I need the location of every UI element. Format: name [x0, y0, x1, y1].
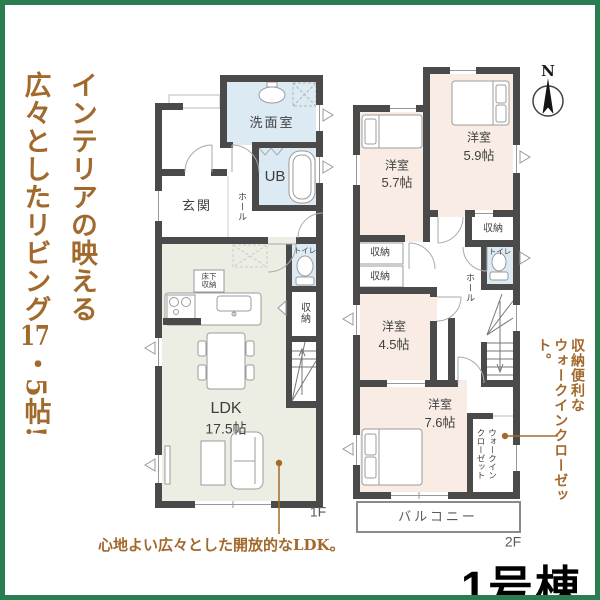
bedroom2-door-arc — [438, 217, 463, 243]
room-label-toilet-2f: トイレ — [489, 248, 512, 256]
room-label-bath: UB — [265, 169, 286, 186]
room-size-bedroom2: 5.9帖 — [463, 149, 494, 163]
room-size-bedroom3: 4.5帖 — [378, 338, 409, 352]
floor2-stairs — [487, 294, 513, 375]
room-label-hall-1f: ホール — [236, 192, 246, 222]
room-label-bedroom1: 洋室 — [385, 159, 409, 172]
bedroom3-door-arc — [437, 297, 461, 321]
wic-caption-line1: 収納便利な — [569, 338, 585, 413]
room-label-wic: ウォークインクローゼット — [475, 429, 498, 480]
room-label-bedroom2: 洋室 — [467, 131, 491, 144]
ldk-caption: 心地よい広々とした開放的なLDK。 — [98, 534, 345, 555]
floor1-label: 1F — [310, 504, 326, 519]
window-shutter-icon — [323, 109, 333, 121]
room-label-closet-2f-c: 収納 — [370, 272, 390, 283]
room-label-balcony: バルコニー — [398, 510, 478, 524]
headline-line2: 広々としたリビング — [19, 71, 50, 323]
floorplan-page: インテリアの映える 広々としたリビング17・5帖! 収納便利な ウォークインクロ… — [0, 0, 600, 600]
washbasin-icon — [259, 87, 285, 103]
room-label-washroom: 洗面室 — [249, 116, 294, 130]
pillow-icon — [365, 434, 376, 455]
headline-vertical-text: インテリアの映える 広々としたリビング17・5帖! — [11, 71, 104, 485]
room-size-bedroom1: 5.7帖 — [381, 176, 412, 190]
room-size-bedroom4: 7.6帖 — [424, 416, 455, 430]
window-shutter-icon — [343, 443, 353, 455]
chair-icon — [246, 341, 254, 356]
floor1-plan — [145, 75, 333, 508]
room-size-ldk: 17.5帖 — [205, 421, 246, 436]
headline-line2-tail: ・5帖! — [19, 350, 50, 439]
room-label-bedroom3: 洋室 — [382, 320, 406, 333]
room-label-hall-2f: ホール — [464, 273, 474, 303]
chair-icon — [198, 341, 206, 356]
room-label-ldk: LDK — [210, 400, 241, 418]
bedroom4-door-arc — [458, 357, 484, 383]
window-shutter-icon — [520, 252, 530, 264]
bedroom1-door-arc — [409, 243, 435, 269]
floor2-plan — [343, 67, 563, 532]
toilet1-bowl — [297, 256, 313, 276]
window-shutter-icon — [323, 161, 333, 173]
pillow-icon — [365, 119, 376, 144]
room-label-closet-2f-b: 収納 — [370, 248, 390, 259]
room-label-toilet-1f: トイレ — [294, 247, 317, 255]
room-label-entrance: 玄関 — [182, 199, 212, 213]
window-shutter-icon — [520, 151, 530, 163]
headline-tcy-17: 17 — [19, 323, 50, 350]
chair-icon — [246, 365, 254, 380]
toilet1-tank — [296, 277, 314, 285]
entrance-door-arc — [185, 145, 212, 172]
window-shutter-icon — [145, 342, 155, 354]
wic-caption-vertical-text: 収納便利な ウォークインクローゼット。 — [535, 338, 585, 510]
wic-caption-line2: ウォークインクローゼット。 — [535, 338, 568, 503]
headline-line1: インテリアの映える — [66, 71, 97, 323]
sink-faucet-icon — [267, 82, 277, 87]
room-label-closet-2f-a: 収納 — [483, 224, 503, 235]
wic-line2: クローゼット — [476, 429, 486, 480]
wic-line1: ウォークイン — [487, 429, 497, 480]
north-label: N — [541, 62, 555, 80]
tv-icon — [165, 446, 170, 484]
north-compass-icon — [533, 78, 563, 116]
underfloor-line2: 収納 — [202, 280, 217, 289]
floor2-label: 2F — [505, 534, 521, 549]
pillow-icon — [496, 105, 506, 122]
window-shutter-icon — [343, 313, 353, 325]
pillow-icon — [496, 85, 506, 103]
building-number-label: 1号棟 — [461, 551, 582, 600]
chair-icon — [198, 365, 206, 380]
room-label-closet-1f: 収納 — [299, 302, 310, 324]
room-label-bedroom4: 洋室 — [428, 398, 452, 411]
dining-table-icon — [207, 333, 245, 389]
tv-board-icon — [201, 441, 225, 485]
pillow-icon — [365, 457, 376, 478]
stairs-down-arrow — [497, 301, 503, 372]
window-shutter-icon — [145, 459, 155, 471]
ldk-callout-dot — [276, 460, 282, 466]
room-label-underfloor-storage: 床下収納 — [202, 273, 217, 290]
toilet2-tank — [490, 272, 508, 280]
